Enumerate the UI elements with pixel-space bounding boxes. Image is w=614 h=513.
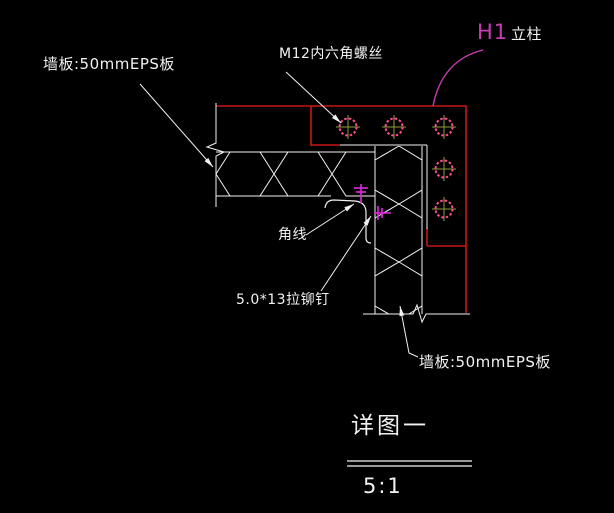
honeycomb-hatch-horizontal — [216, 152, 390, 196]
eps-panel-vertical — [375, 146, 422, 320]
bolt-symbol — [336, 115, 360, 139]
honeycomb-hatch-vertical — [375, 146, 422, 320]
bolt-symbol — [382, 115, 406, 139]
eps-panel-horizontal — [216, 152, 390, 196]
leader-bolt — [286, 72, 341, 123]
label-column-tag: H1 — [477, 21, 508, 44]
rivet-symbol-vertical — [354, 184, 368, 203]
break-line-bottom — [363, 305, 470, 322]
label-wall-panel-bottom: 墙板:50mmEPS板 — [419, 354, 551, 371]
bolt-symbol — [432, 157, 456, 181]
leader-wall-panel-top — [140, 84, 213, 167]
steel-angle-outline — [216, 106, 466, 313]
label-wall-panel-top: 墙板:50mmEPS板 — [43, 56, 175, 73]
label-bolt: M12内六角螺丝 — [279, 47, 383, 62]
bolt-symbol — [432, 197, 456, 221]
drawing-title: 详图一 — [351, 414, 429, 439]
title-underline — [347, 461, 472, 466]
leader-rivet — [321, 216, 371, 291]
break-line-left — [207, 103, 224, 207]
detail-drawing-canvas — [0, 0, 614, 513]
leader-column-tag — [433, 50, 483, 106]
bolt-group — [336, 115, 456, 221]
label-column-name: 立柱 — [511, 26, 542, 43]
steel-angle-inner-edges — [340, 145, 427, 229]
bolt-symbol — [432, 115, 456, 139]
label-rivet: 5.0*13拉铆钉 — [236, 293, 330, 308]
label-corner-trim: 角线 — [278, 228, 307, 243]
corner-trim — [325, 200, 371, 243]
drawing-scale: 5:1 — [363, 475, 403, 498]
leader-corner-trim — [306, 204, 354, 235]
cad-detail-drawing: 墙板:50mmEPS板 M12内六角螺丝 H1 立柱 角线 5.0*13拉铆钉 … — [0, 0, 614, 513]
rivet-symbol-horizontal — [374, 206, 391, 220]
